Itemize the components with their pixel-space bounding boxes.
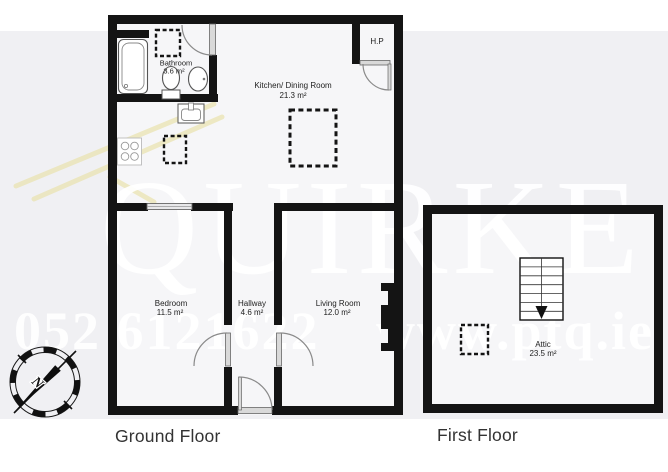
north-label: N (27, 373, 46, 392)
wall-hallway-living (274, 203, 282, 325)
wall (423, 205, 663, 214)
front-door-threshold (238, 408, 272, 414)
bedroom-label: Bedroom (155, 300, 187, 308)
wall-bedroom-hallway (224, 367, 232, 415)
kitchen-label: Kitchen/ Dining Room (254, 82, 331, 90)
ground-floor-title: Ground Floor (115, 426, 221, 447)
wall (423, 404, 663, 413)
wall (108, 203, 148, 211)
attic-area: 23.5 m² (529, 350, 556, 358)
sink-tap (203, 78, 206, 81)
kitchen-fixtures (118, 103, 205, 165)
first-floor-title: First Floor (437, 425, 518, 446)
plan-drawing: N (0, 0, 668, 472)
wall (108, 406, 238, 415)
attic-label: Attic (535, 341, 551, 349)
bathroom-rooflight-marker (156, 30, 180, 56)
hotpress-door-frame (360, 61, 390, 66)
wall-bathroom-right (209, 55, 217, 102)
toilet-cistern (162, 90, 180, 99)
front-door-leaf (239, 377, 242, 410)
chimney-notch (381, 329, 388, 343)
wall-hallway-living (274, 367, 282, 415)
wall-bedroom-hallway (224, 203, 232, 325)
kitchen-area: 21.3 m² (279, 92, 306, 100)
kitchen-sink-basin (182, 109, 201, 121)
hob-counter (118, 138, 142, 165)
hotpress-door-leaf (388, 64, 391, 90)
front-door-arc (239, 377, 272, 410)
hotpress-door-arc (363, 64, 389, 90)
livingroom-area: 12.0 m² (323, 309, 350, 317)
wall-bath-alcove (117, 30, 149, 38)
hotpress-label: H.P (370, 38, 383, 46)
kitchen-sink-tap (189, 103, 194, 110)
bedroom-door-leaf (226, 333, 231, 366)
kitchen-rooflight-marker (164, 136, 186, 163)
wall-livingroom-top (274, 203, 403, 211)
wall (272, 406, 403, 415)
ground-floor-walls (108, 15, 403, 415)
wall (394, 15, 403, 415)
bathroom-area: 3.6 m² (163, 67, 184, 75)
staircase (520, 258, 563, 320)
wall (423, 205, 432, 413)
wall (108, 15, 117, 415)
attic-rooflight-marker (461, 325, 488, 354)
livingroom-label: Living Room (316, 300, 360, 308)
hallway-label: Hallway (238, 300, 266, 308)
bedroom-door-arc (194, 333, 227, 366)
compass-rose: N (10, 347, 80, 417)
bathtub-inner (122, 43, 144, 90)
wall-hotpress-left (352, 15, 360, 64)
floorplan-page: QUIRKE 052 6121622 www.ptq.ie (0, 0, 668, 472)
kitchen-stairs-overhead-marker (290, 110, 336, 166)
bedroom-area: 11.5 m² (157, 309, 184, 317)
bathroom-door-arc (182, 25, 212, 55)
bathroom-door-leaf (210, 24, 216, 55)
wall (654, 205, 663, 413)
chimney-notch (381, 291, 388, 305)
livingroom-door-leaf (277, 333, 282, 366)
livingroom-door-arc (280, 333, 313, 366)
hallway-area: 4.6 m² (241, 309, 264, 317)
